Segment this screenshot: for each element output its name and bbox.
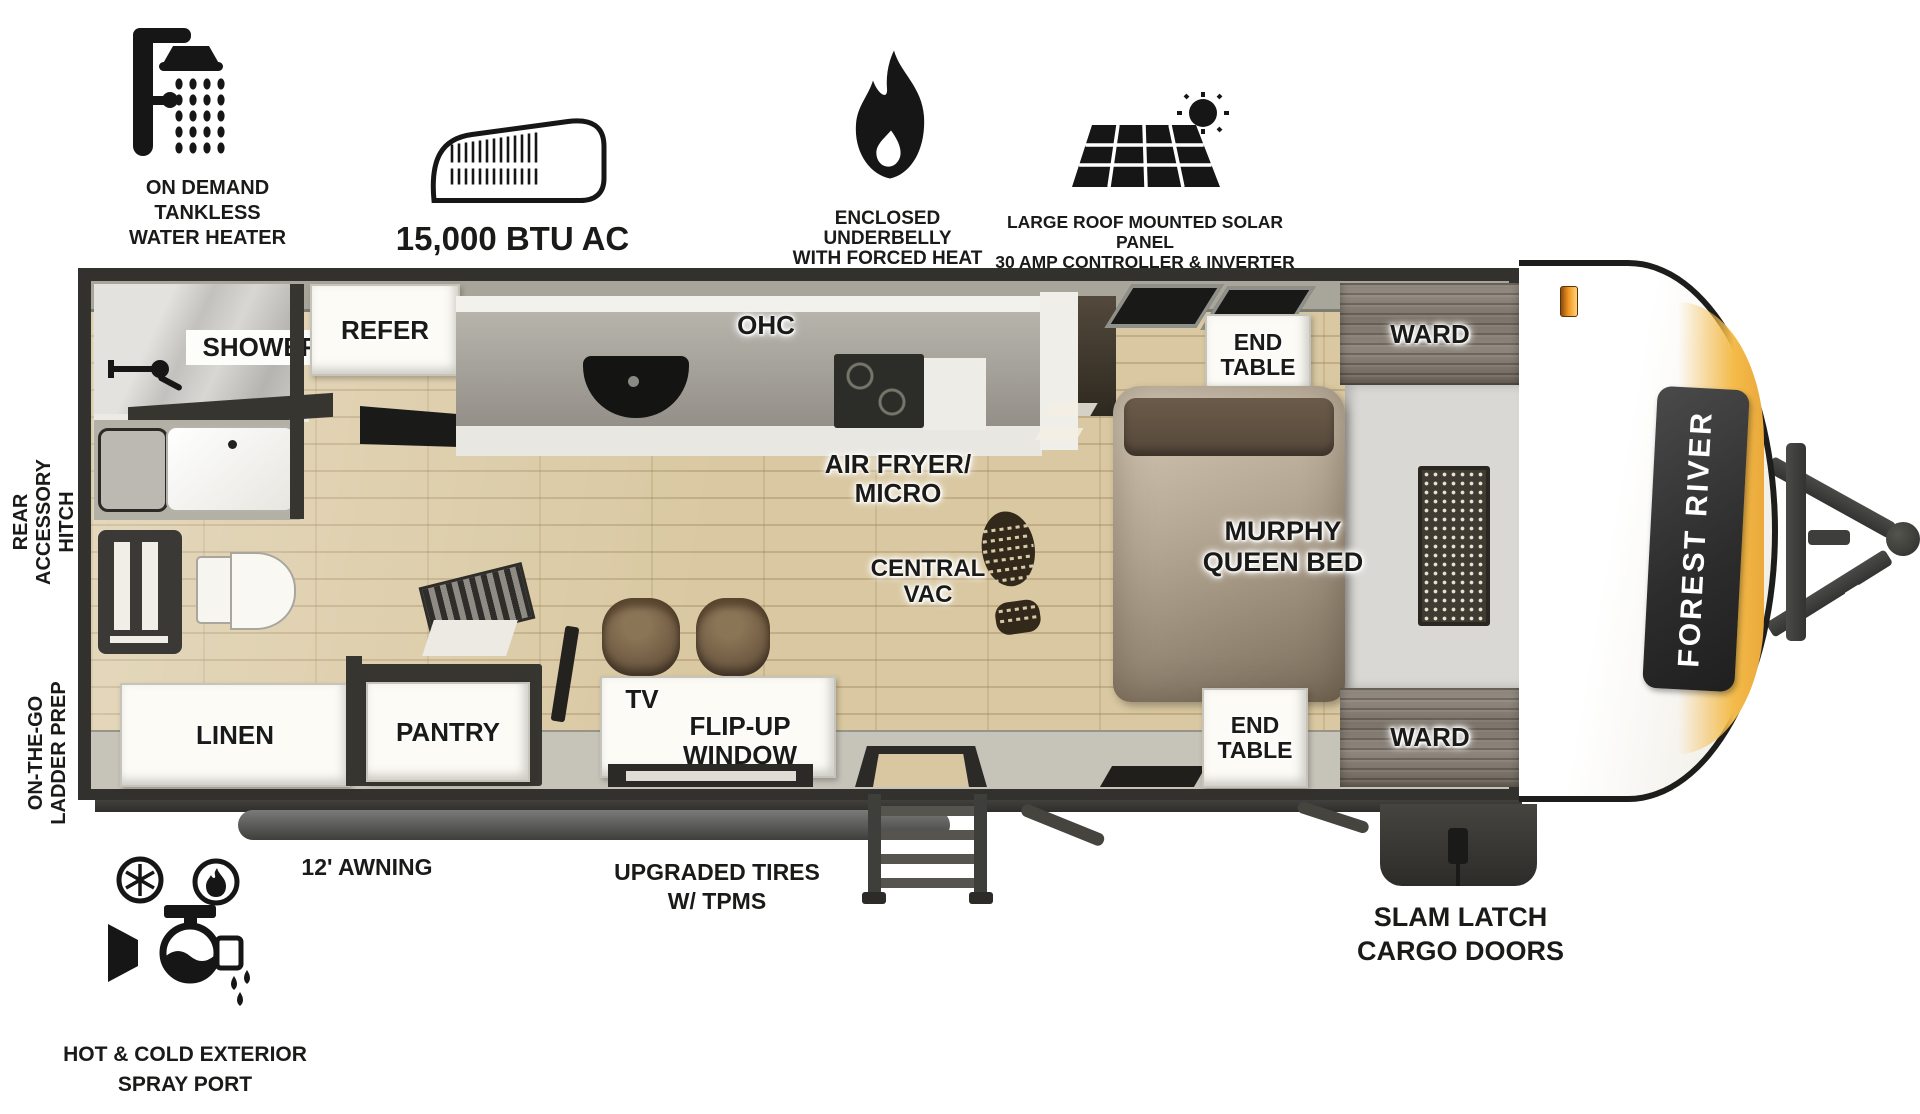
end-table-top: END TABLE <box>1205 314 1311 396</box>
ohc-label: OHC <box>718 310 814 341</box>
flip-up-window-label: FLIP-UP WINDOW <box>650 712 830 770</box>
wardrobe-top: WARD <box>1340 283 1520 385</box>
murphy-bed-label: MURPHY QUEEN BED <box>1163 516 1403 578</box>
hitch-lower-bar <box>1765 549 1893 638</box>
bed-pillows <box>1124 398 1334 456</box>
stool <box>602 598 680 676</box>
bed-head-wall <box>1078 296 1116 416</box>
floorplan-body: SHOWER LINEN REFER OHC AIR FRYER/ MICRO … <box>78 268 1522 800</box>
linen-label: LINEN <box>196 720 274 751</box>
sink-drain <box>628 376 639 387</box>
ac-unit-icon <box>420 110 610 210</box>
floor-mat <box>1044 403 1098 416</box>
entry-steps-icon <box>858 794 998 909</box>
brand-badge: FOREST RIVER <box>1642 386 1750 692</box>
shower-head-icon <box>108 354 193 394</box>
spray-port-icon <box>100 835 275 1025</box>
flip-window-sill <box>626 771 796 781</box>
bath-sink <box>166 426 295 512</box>
ladder-prep-label: ON-THE-GO LADDER PREP <box>25 623 73 883</box>
ac-label: 15,000 BTU AC <box>385 220 640 258</box>
tires-label: UPGRADED TIRES W/ TPMS <box>597 858 837 916</box>
pantry: PANTRY <box>366 682 530 782</box>
marker-light <box>1560 286 1578 317</box>
step-well <box>1100 766 1206 787</box>
cargo-doors-label: SLAM LATCH CARGO DOORS <box>1318 900 1603 968</box>
bath-window <box>98 530 182 654</box>
bath-faucet <box>228 440 237 449</box>
screen-vent <box>1418 466 1490 626</box>
linen-closet: LINEN <box>120 683 350 787</box>
furnace-base <box>422 620 518 656</box>
stool <box>696 598 770 676</box>
end-table-bottom: END TABLE <box>1202 688 1308 788</box>
tv-label: TV <box>612 684 672 715</box>
cargo-latch-stem <box>1456 862 1460 886</box>
pantry-label: PANTRY <box>396 717 500 748</box>
end-table-bottom-label: END TABLE <box>1218 713 1293 763</box>
ward-bottom-label: WARD <box>1390 722 1469 753</box>
floor-mat <box>1035 428 1084 440</box>
floorplan-diagram: ON DEMAND TANKLESS WATER HEATER 15,000 B… <box>0 0 1920 1114</box>
bath-kitchen-wall <box>290 284 304 519</box>
cooktop <box>834 354 924 428</box>
underbelly-label: ENCLOSED UNDERBELLY WITH FORCED HEAT <box>770 209 1005 269</box>
cargo-door <box>1380 804 1537 886</box>
wardrobe-bottom: WARD <box>1340 688 1520 787</box>
refrigerator: REFER <box>310 284 460 376</box>
flame-icon <box>840 46 940 196</box>
brand-name: FOREST RIVER <box>1672 409 1719 668</box>
entry-door-floor <box>873 754 969 787</box>
cargo-latch <box>1448 828 1468 864</box>
hitch-crossbar <box>1786 443 1806 641</box>
water-heater-label: ON DEMAND TANKLESS WATER HEATER <box>85 176 330 251</box>
hitch-coupler <box>1886 522 1920 556</box>
rear-hitch-label: REAR ACCESSORY HITCH <box>10 407 82 637</box>
spray-port-label: HOT & COLD EXTERIOR SPRAY PORT <box>60 1040 310 1100</box>
shower-icon <box>115 20 275 170</box>
counter-end-panel <box>1040 292 1078 450</box>
awning-label: 12' AWNING <box>267 854 467 881</box>
counter-end-white <box>924 358 986 430</box>
refer-label: REFER <box>341 315 429 346</box>
central-vac-label: CENTRAL VAC <box>868 556 988 608</box>
solar-panel-icon <box>1068 88 1233 206</box>
bath-mirror <box>98 428 168 512</box>
hitch-jack-handle <box>1808 530 1850 545</box>
awning-bar <box>238 810 950 840</box>
end-table-top-label: END TABLE <box>1221 330 1296 380</box>
ward-top-label: WARD <box>1390 319 1469 350</box>
air-fryer-label: AIR FRYER/ MICRO <box>813 450 983 508</box>
